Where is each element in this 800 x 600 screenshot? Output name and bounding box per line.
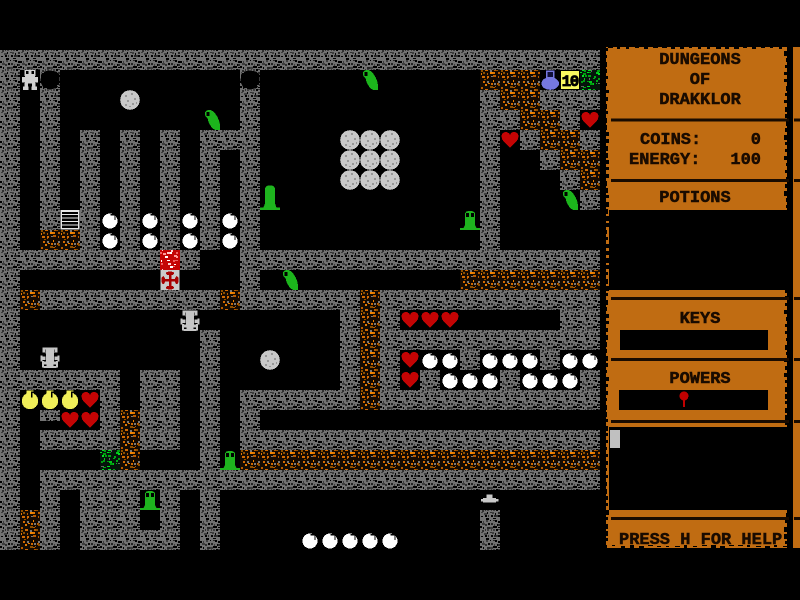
- svg-text:DUNGEONS: DUNGEONS: [659, 51, 741, 70]
- svg-text:100: 100: [730, 151, 761, 170]
- svg-text:POWERS: POWERS: [669, 370, 730, 389]
- svg-text:COINS:: COINS:: [640, 131, 701, 150]
- svg-text:DRAKKLOR: DRAKKLOR: [659, 91, 741, 110]
- svg-text:PRESS H FOR HELP: PRESS H FOR HELP: [619, 531, 782, 550]
- svg-text:ENERGY:: ENERGY:: [629, 151, 700, 170]
- svg-text:0: 0: [751, 131, 761, 150]
- svg-text:POTIONS: POTIONS: [659, 189, 730, 208]
- svg-text:OF: OF: [690, 71, 710, 90]
- svg-text:KEYS: KEYS: [680, 310, 721, 329]
